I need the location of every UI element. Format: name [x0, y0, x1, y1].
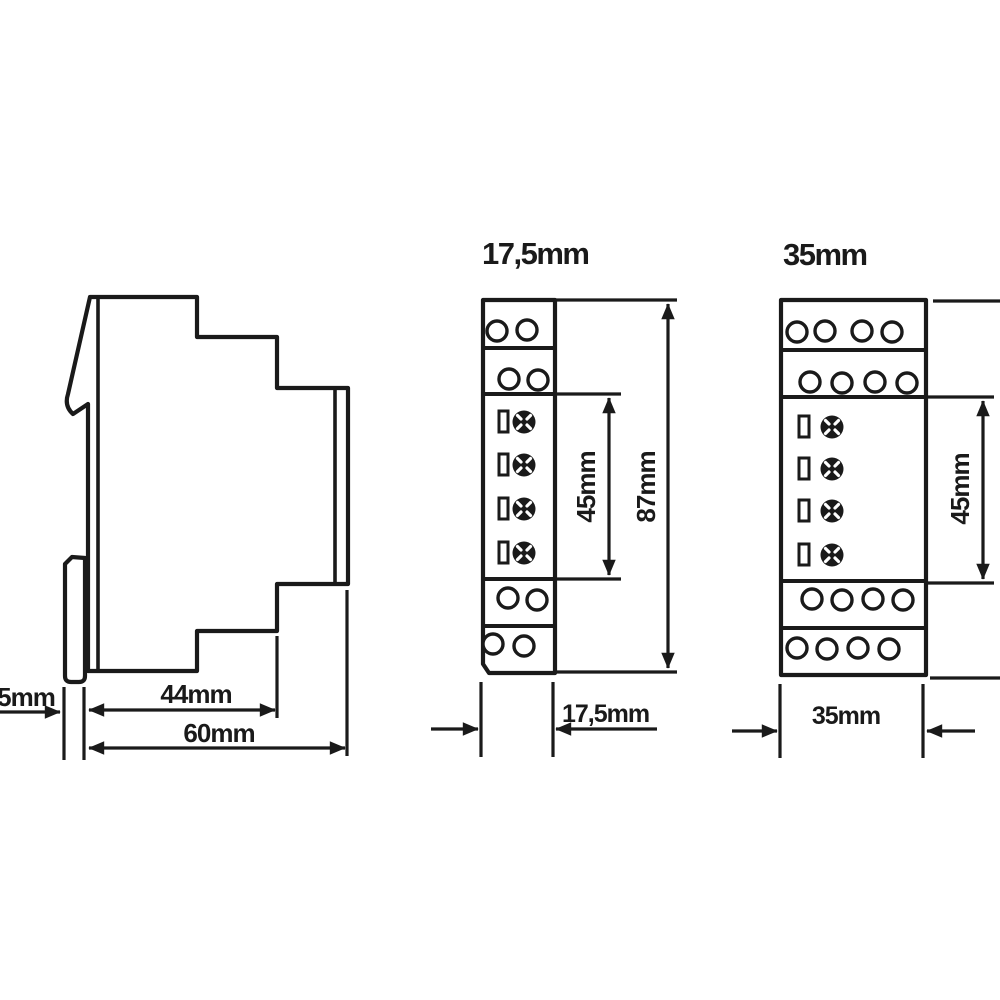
- side-body-outline: [67, 297, 348, 671]
- terminal-circle: [848, 638, 868, 658]
- terminal-circle: [893, 590, 913, 610]
- front-view-17-5mm: 17,5mm: [431, 236, 677, 757]
- terminal-circle: [483, 634, 503, 654]
- terminal-circle: [852, 321, 872, 341]
- indicator-window: [799, 500, 809, 521]
- terminal-circle: [498, 588, 518, 608]
- terminal-circle: [882, 322, 902, 342]
- terminal-circle: [815, 321, 835, 341]
- terminal-circle: [787, 322, 807, 342]
- adjustment-screw: [821, 416, 844, 439]
- dimension-label: 45mm: [571, 451, 601, 522]
- narrow-top-terminals: [487, 320, 548, 390]
- terminal-circle: [832, 590, 852, 610]
- indicator-window: [499, 411, 508, 432]
- dimension-44mm: 44mm: [89, 636, 277, 718]
- view-title: 17,5mm: [482, 236, 588, 271]
- indicator-window: [499, 454, 508, 475]
- terminal-circle: [817, 639, 837, 659]
- adjustment-screw: [513, 542, 536, 565]
- terminal-circle: [865, 372, 885, 392]
- dimension-label: 44mm: [160, 679, 231, 709]
- dimension-35mm-width: 35mm: [732, 684, 975, 758]
- terminal-circle: [499, 369, 519, 389]
- wide-center-panel: [799, 416, 844, 567]
- adjustment-screw: [821, 500, 844, 523]
- terminal-circle: [528, 370, 548, 390]
- dimension-label: 87mm: [631, 451, 661, 522]
- terminal-circle: [487, 321, 507, 341]
- front-view-35mm: 35mm: [732, 237, 1000, 758]
- dimension-45mm-narrow: 45mm: [556, 394, 621, 579]
- side-profile-view: 5mm 44mm 60mm: [0, 297, 348, 760]
- indicator-window: [499, 542, 508, 563]
- terminal-circle: [863, 589, 883, 609]
- dimension-5mm: 5mm: [0, 682, 84, 760]
- indicator-window: [799, 544, 809, 565]
- terminal-circle: [832, 373, 852, 393]
- indicator-window: [499, 498, 508, 519]
- dimension-45mm-wide: 45mm: [928, 397, 994, 583]
- dimension-label: 35mm: [812, 702, 880, 730]
- technical-drawing-page: 5mm 44mm 60mm 17,5mm: [0, 0, 1000, 1000]
- din-clip-lever: [65, 557, 85, 682]
- dimension-label: 5mm: [0, 682, 55, 712]
- dimensional-drawing: 5mm 44mm 60mm 17,5mm: [0, 0, 1000, 1000]
- indicator-window: [799, 458, 809, 479]
- wide-top-terminals: [787, 321, 917, 393]
- terminal-circle: [897, 373, 917, 393]
- adjustment-screw: [513, 454, 536, 477]
- terminal-circle: [800, 372, 820, 392]
- narrow-center-panel: [499, 411, 536, 565]
- terminal-circle: [514, 636, 534, 656]
- narrow-body-outline: [483, 300, 555, 673]
- dimension-17-5mm-width: 17,5mm: [431, 682, 657, 757]
- dimension-label: 17,5mm: [562, 700, 649, 728]
- terminal-circle: [787, 638, 807, 658]
- wide-bottom-terminals: [787, 589, 913, 659]
- adjustment-screw: [513, 411, 536, 434]
- terminal-circle: [517, 320, 537, 340]
- terminal-circle: [879, 639, 899, 659]
- wide-body-outline: [781, 300, 926, 675]
- view-title: 35mm: [783, 237, 867, 272]
- adjustment-screw: [513, 498, 536, 521]
- dimension-label: 45mm: [945, 453, 975, 524]
- terminal-circle: [527, 590, 547, 610]
- adjustment-screw: [821, 544, 844, 567]
- dimension-label: 60mm: [183, 718, 254, 748]
- terminal-circle: [802, 589, 822, 609]
- narrow-bottom-terminals: [483, 588, 547, 656]
- adjustment-screw: [821, 458, 844, 481]
- indicator-window: [799, 416, 809, 437]
